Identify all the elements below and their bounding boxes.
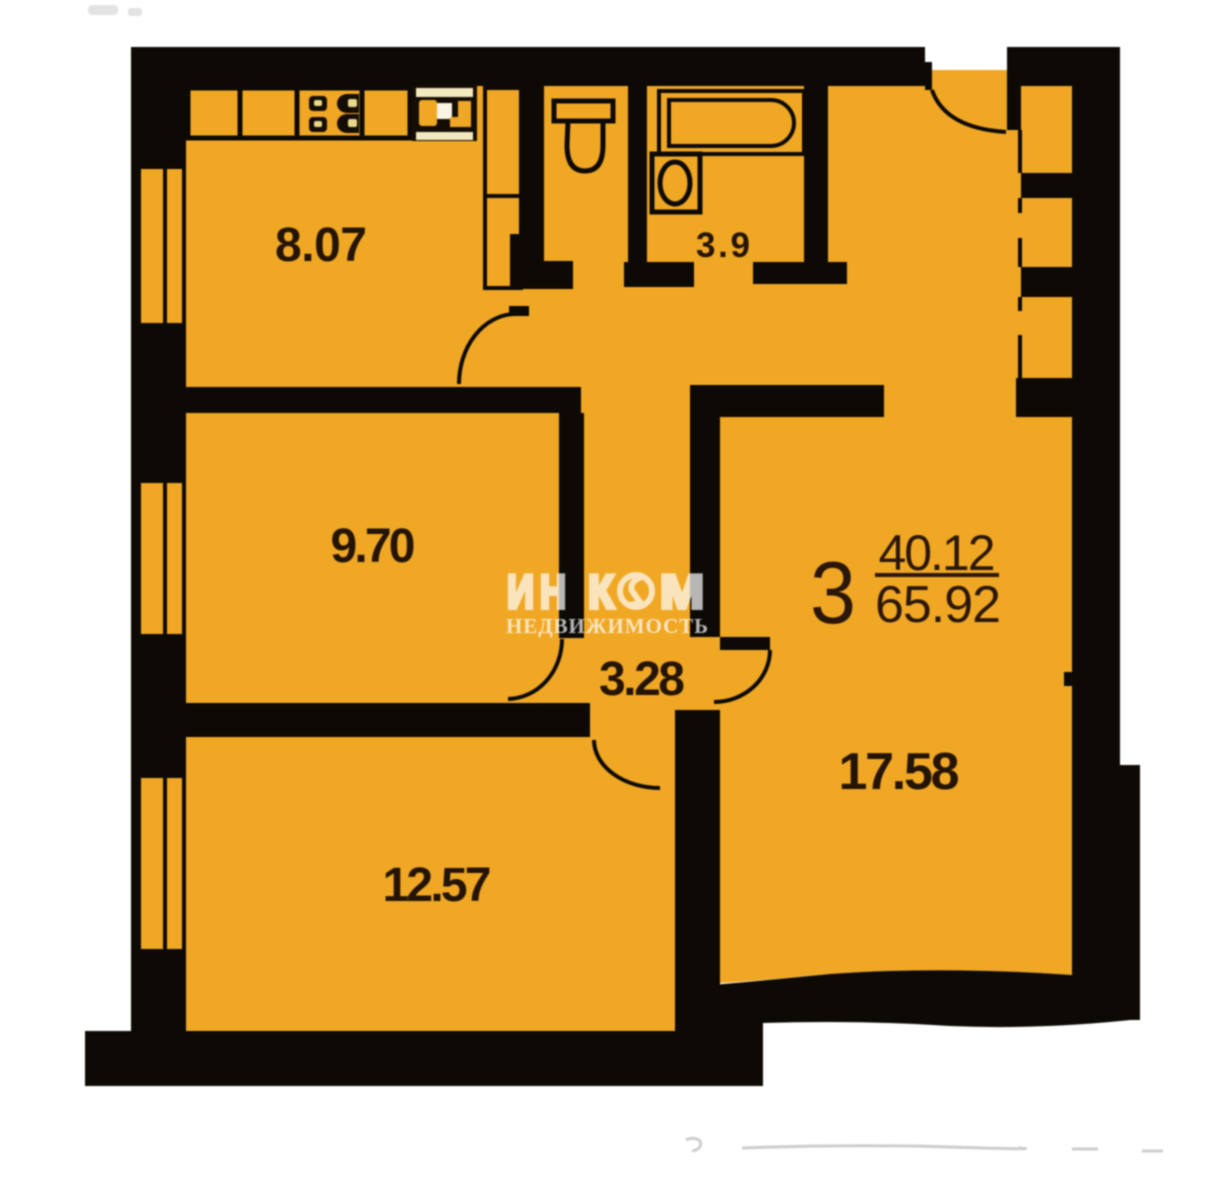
svg-text:М: М [660, 565, 704, 618]
svg-text:9.70: 9.70 [331, 520, 416, 573]
svg-text:3: 3 [810, 543, 856, 642]
svg-text:65.92: 65.92 [875, 576, 1001, 634]
svg-text:3.9: 3.9 [696, 226, 750, 265]
svg-text:И: И [507, 565, 534, 618]
svg-text:3.28: 3.28 [599, 653, 685, 706]
svg-text:40.12: 40.12 [879, 525, 996, 581]
svg-text:НЕДВИЖИМОСТЬ: НЕДВИЖИМОСТЬ [506, 614, 708, 638]
svg-text:17.58: 17.58 [839, 743, 960, 801]
svg-text:12.57: 12.57 [383, 859, 492, 912]
svg-text:Н: Н [540, 565, 566, 618]
svg-text:8.07: 8.07 [275, 219, 367, 272]
svg-text:К: К [588, 565, 614, 618]
